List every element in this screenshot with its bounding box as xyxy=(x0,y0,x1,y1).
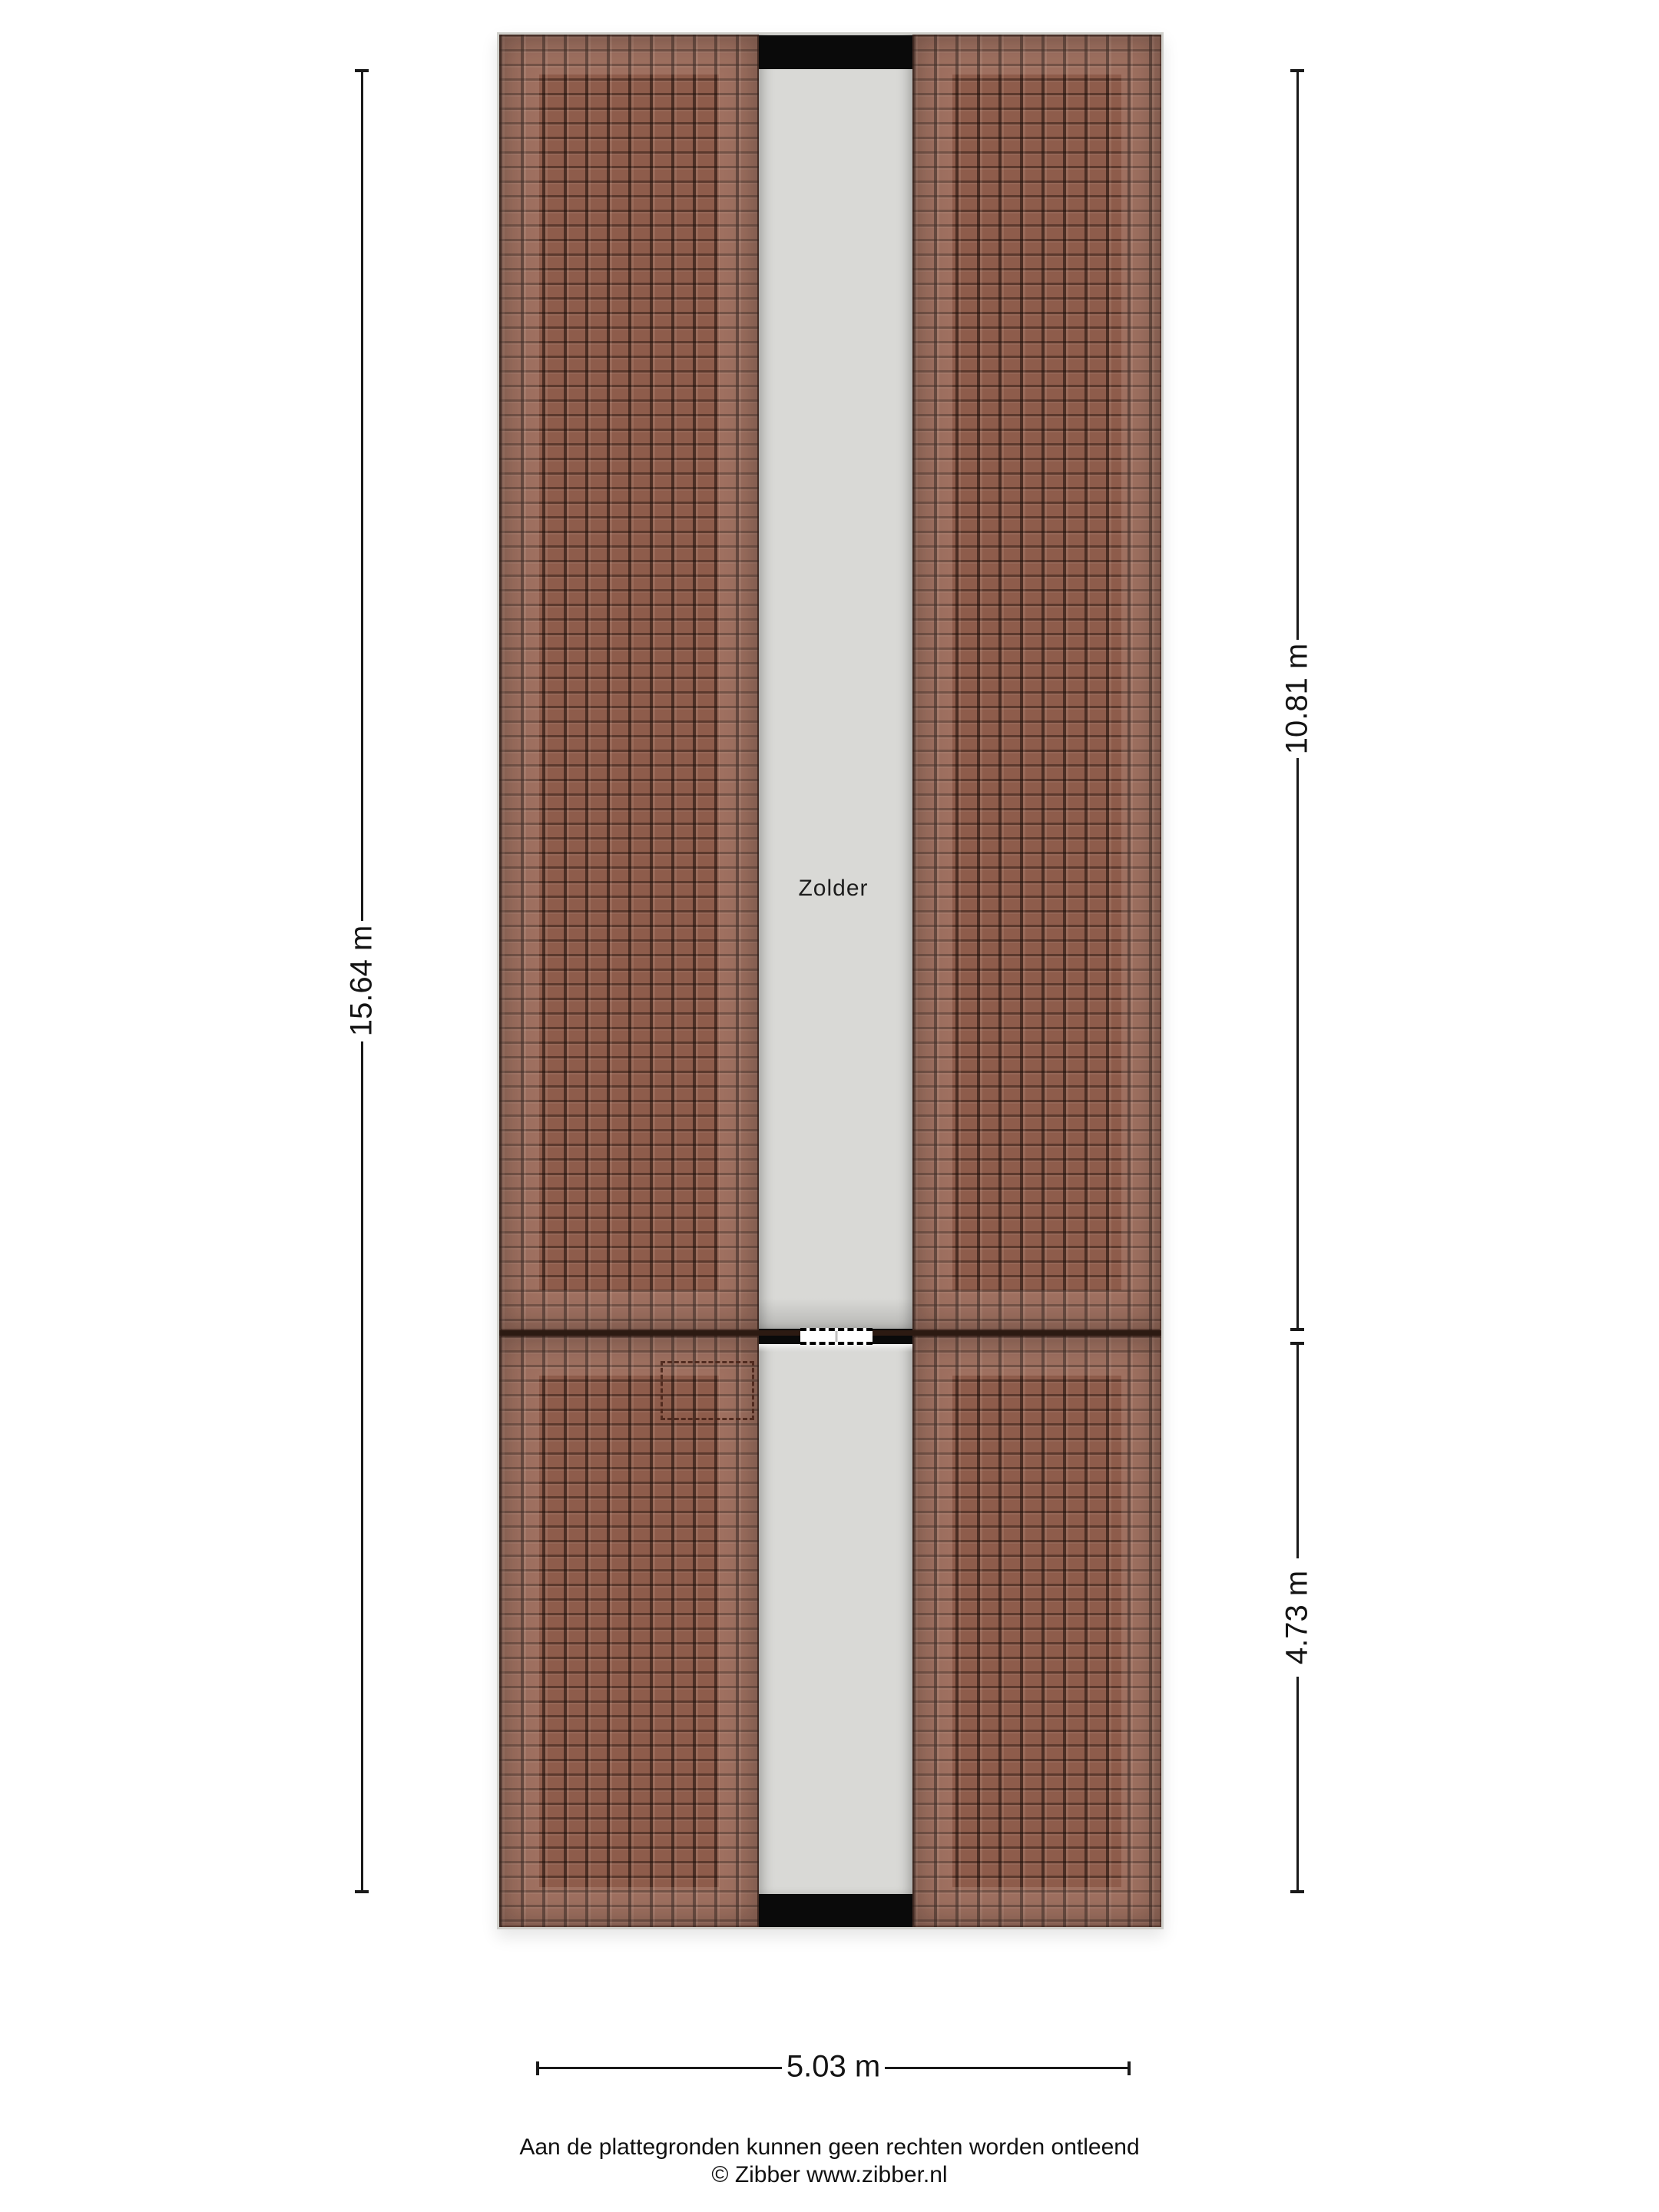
dim-right-upper-tick-top xyxy=(1290,69,1304,72)
roof-panel-top-left xyxy=(499,35,759,1330)
room-label: Zolder xyxy=(798,876,868,902)
dim-right-lower-tick-bottom xyxy=(1290,1890,1304,1893)
dim-bottom-tick-left xyxy=(536,2061,539,2075)
dim-bottom-line-a xyxy=(538,2067,782,2069)
footer-disclaimer: Aan de plattegronden kunnen geen rechten… xyxy=(0,2134,1659,2161)
dim-right-upper-line-a xyxy=(1296,71,1299,640)
attic-floor-lower xyxy=(759,1344,912,1894)
roof-panel-bottom-left xyxy=(499,1336,759,1927)
roof-panel-top-right xyxy=(912,35,1161,1330)
ridge-hatch-symbol xyxy=(800,1328,873,1345)
dim-bottom-line-b xyxy=(885,2067,1129,2069)
dim-right-lower-line-b xyxy=(1296,1677,1299,1892)
footer-credit: © Zibber www.zibber.nl xyxy=(0,2162,1659,2188)
roof-panel-bottom-right xyxy=(912,1336,1161,1927)
dashed-roof-outline xyxy=(661,1361,754,1420)
dim-left-line-upper xyxy=(361,71,363,921)
ridge-highlight xyxy=(759,1344,912,1352)
top-black-band xyxy=(759,35,912,69)
floorplan-inner xyxy=(499,35,1161,1927)
ridge-shadow xyxy=(759,1298,912,1329)
ridge-hatch-divider xyxy=(836,1331,838,1342)
dim-left-tick-top xyxy=(355,69,369,72)
dim-label-width: 5.03 m xyxy=(786,2050,880,2085)
dim-label-upper-section: 10.81 m xyxy=(1280,644,1315,755)
dim-bottom-tick-right xyxy=(1128,2061,1131,2075)
dim-left-tick-bottom xyxy=(355,1890,369,1893)
dim-left-line-lower xyxy=(361,1041,363,1892)
bottom-black-band xyxy=(759,1894,912,1927)
dim-right-upper-line-b xyxy=(1296,758,1299,1330)
attic-floor-upper xyxy=(759,35,912,1329)
dim-right-lower-line-a xyxy=(1296,1343,1299,1558)
dim-right-upper-tick-bottom xyxy=(1290,1328,1304,1331)
dim-right-lower-tick-top xyxy=(1290,1342,1304,1345)
floorplan-canvas xyxy=(497,32,1164,1929)
dim-label-lower-section: 4.73 m xyxy=(1280,1571,1315,1664)
dim-label-overall-height: 15.64 m xyxy=(345,926,379,1037)
